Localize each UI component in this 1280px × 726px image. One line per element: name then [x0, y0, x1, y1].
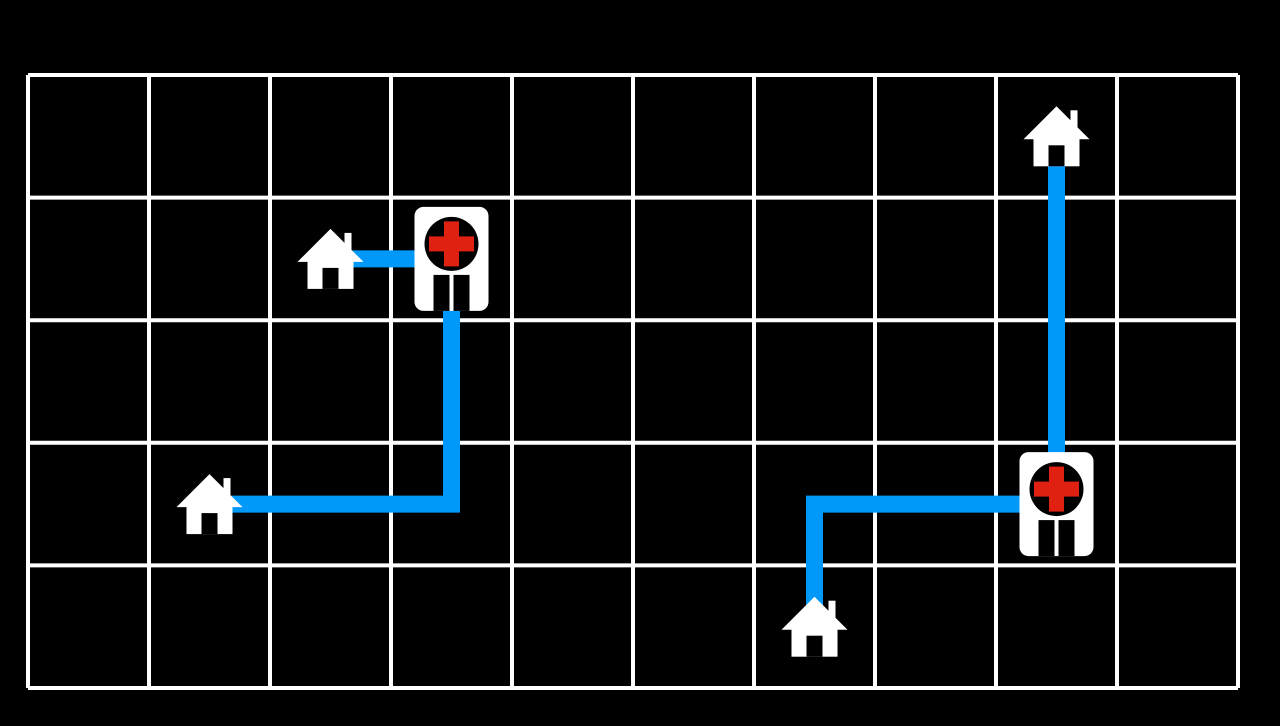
hospital-door-left: [1039, 520, 1055, 556]
house-door: [202, 513, 218, 534]
red-cross-icon: [1034, 482, 1079, 497]
house-top-right-house-icon[interactable]: [1024, 106, 1090, 166]
house-lower-left-house-icon[interactable]: [177, 474, 243, 534]
house-upper-left-house-icon[interactable]: [298, 229, 364, 289]
house-door: [323, 268, 339, 289]
game-screen: Cost: 11: [0, 0, 1280, 726]
hospital-door-right: [454, 275, 470, 311]
hospital-upper-left-hospital-icon[interactable]: [415, 207, 489, 311]
red-cross-icon: [429, 236, 474, 251]
house-door: [807, 636, 823, 657]
house-bottom-mid-house-icon[interactable]: [782, 597, 848, 657]
routing-grid-board[interactable]: [0, 0, 1280, 726]
hospital-right-hospital-icon[interactable]: [1020, 452, 1094, 556]
house-door: [1049, 145, 1065, 166]
hospital-door-right: [1059, 520, 1075, 556]
hospital-door-left: [434, 275, 450, 311]
